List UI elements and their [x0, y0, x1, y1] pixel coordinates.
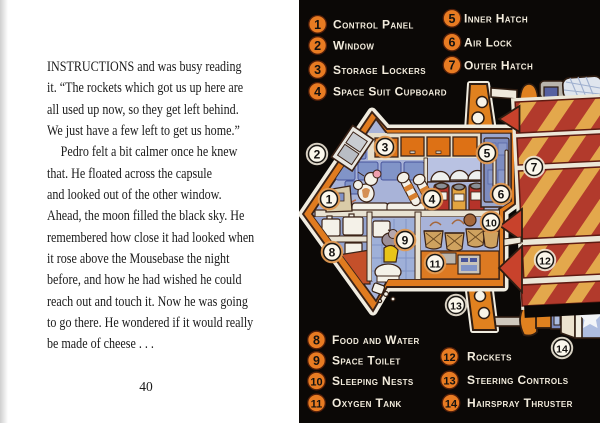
- svg-text:Control Panel: Control Panel: [333, 18, 414, 32]
- svg-text:5: 5: [484, 147, 491, 161]
- svg-text:12: 12: [539, 256, 551, 268]
- svg-text:7: 7: [449, 59, 456, 73]
- svg-text:5: 5: [449, 12, 456, 26]
- svg-text:6: 6: [449, 36, 456, 50]
- svg-text:2: 2: [314, 148, 321, 162]
- svg-text:14: 14: [445, 399, 458, 411]
- svg-text:9: 9: [313, 354, 320, 368]
- svg-text:Hairspray Thruster: Hairspray Thruster: [467, 396, 573, 410]
- svg-text:9: 9: [402, 234, 409, 248]
- svg-text:7: 7: [531, 161, 538, 175]
- svg-text:10: 10: [485, 218, 497, 230]
- svg-text:12: 12: [443, 352, 455, 364]
- svg-text:2: 2: [314, 39, 321, 53]
- svg-text:Space Suit Cupboard: Space Suit Cupboard: [333, 85, 447, 99]
- svg-text:Air Lock: Air Lock: [464, 35, 512, 49]
- svg-text:10: 10: [310, 377, 322, 389]
- svg-text:Outer Hatch: Outer Hatch: [464, 58, 533, 72]
- svg-text:1: 1: [326, 193, 333, 207]
- svg-text:8: 8: [329, 246, 336, 260]
- svg-text:11: 11: [429, 259, 440, 271]
- svg-text:8: 8: [313, 334, 320, 348]
- svg-text:Window: Window: [333, 39, 374, 53]
- svg-text:Oxygen Tank: Oxygen Tank: [332, 396, 402, 410]
- svg-text:14: 14: [556, 344, 568, 356]
- svg-text:13: 13: [443, 376, 455, 388]
- svg-text:13: 13: [450, 301, 462, 313]
- svg-text:Inner Hatch: Inner Hatch: [464, 12, 528, 26]
- svg-text:Storage Lockers: Storage Lockers: [333, 63, 426, 77]
- svg-text:Food and Water: Food and Water: [332, 333, 420, 347]
- svg-text:3: 3: [382, 141, 389, 155]
- svg-text:Sleeping Nests: Sleeping Nests: [332, 374, 414, 388]
- svg-text:6: 6: [498, 188, 505, 202]
- svg-text:1: 1: [314, 18, 321, 32]
- svg-text:11: 11: [311, 399, 323, 411]
- svg-text:3: 3: [314, 63, 321, 77]
- svg-text:Space Toilet: Space Toilet: [332, 354, 401, 368]
- svg-text:Rockets: Rockets: [467, 350, 512, 364]
- svg-text:Steering Controls: Steering Controls: [467, 373, 569, 387]
- svg-text:4: 4: [429, 193, 436, 207]
- svg-text:4: 4: [314, 85, 321, 99]
